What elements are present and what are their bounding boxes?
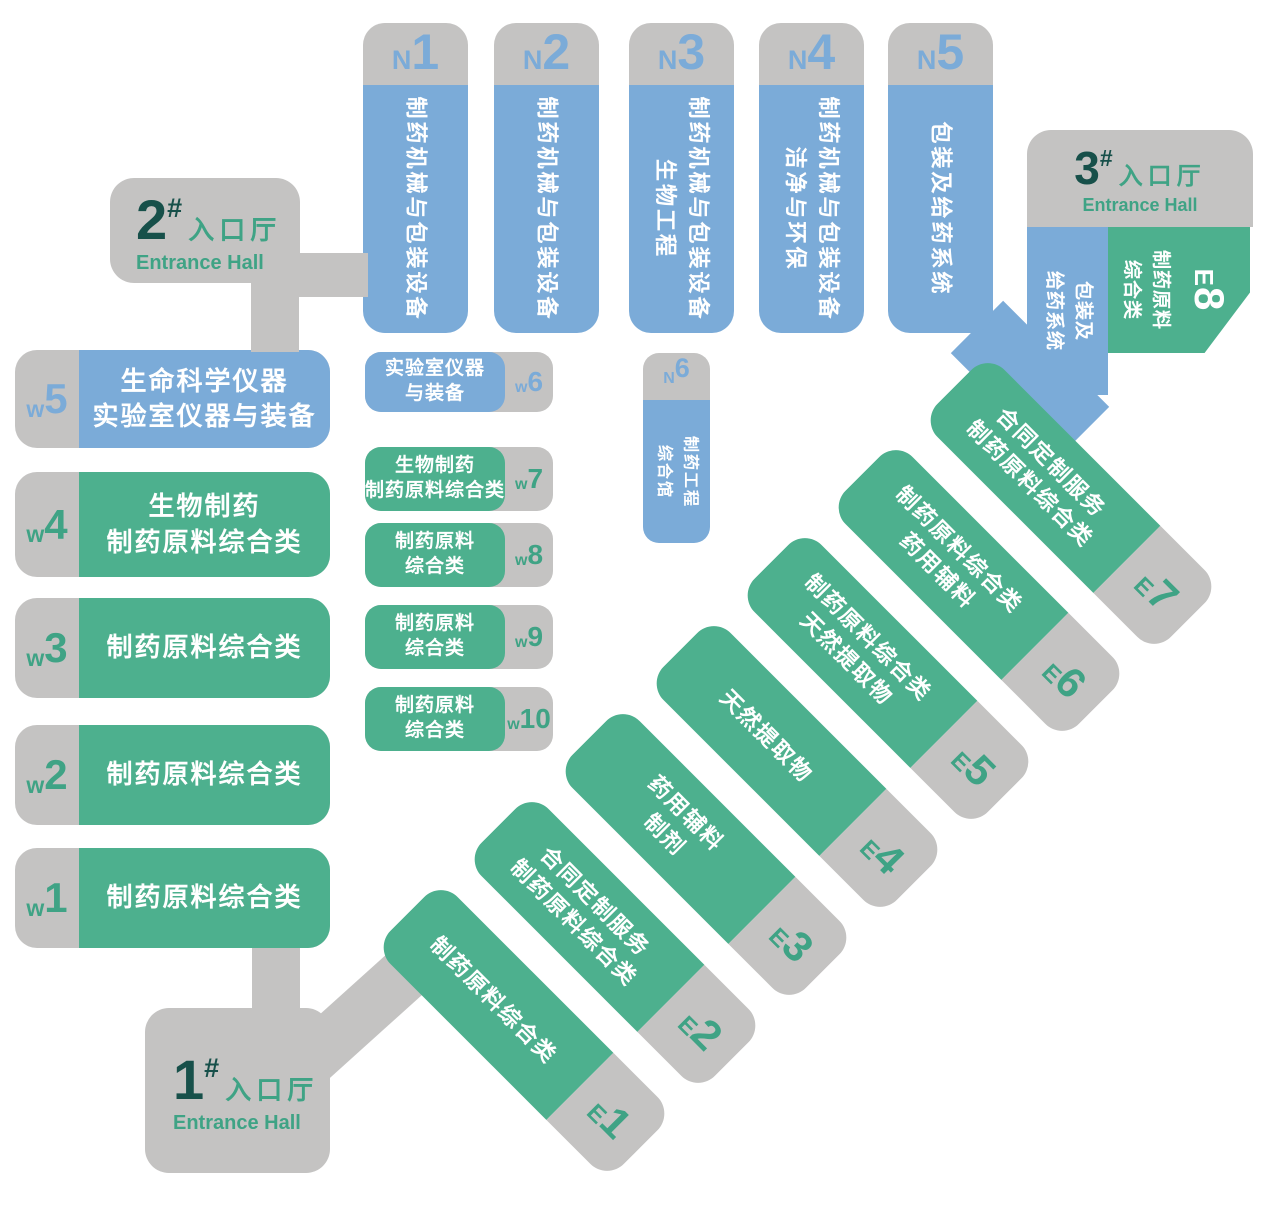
floor-plan-map: 包装及 给药系统 E8 制药原料 综合类 3#入口厅 Entrance Hall… xyxy=(0,0,1266,1208)
entrance-3-number: 3 xyxy=(1074,142,1100,194)
hall-e8-id: E8 xyxy=(1178,250,1241,330)
entrance-2-hash: # xyxy=(167,193,182,223)
hall-w7-category: 生物制药制药原料综合类 xyxy=(365,447,505,511)
hall-w2-category: 制药原料综合类 xyxy=(79,725,330,825)
hall-w5-id: w5 xyxy=(15,350,79,448)
hall-w6-category: 实验室仪器与装备 xyxy=(365,352,505,412)
hall-w8-id: w8 xyxy=(505,523,553,587)
hall-w6-id: w6 xyxy=(505,352,553,412)
hall-n3: N3 制药机械与包装设备生物工程 xyxy=(629,23,734,333)
hall-w4: w4 生物制药制药原料综合类 xyxy=(15,472,330,577)
hall-w3-id: w3 xyxy=(15,598,79,698)
hall-n1: N1 制药机械与包装设备 xyxy=(363,23,468,333)
hall-e8: E8 制药原料 综合类 xyxy=(1108,227,1250,353)
hall-n4-id: N4 xyxy=(759,23,864,85)
hall-w8-category: 制药原料综合类 xyxy=(365,523,505,587)
hall-e8-packaging-wing: 包装及 给药系统 xyxy=(1027,227,1108,395)
entrance-1-number: 1 xyxy=(173,1048,204,1111)
entrance-2-number: 2 xyxy=(136,188,167,251)
hall-w4-category: 生物制药制药原料综合类 xyxy=(79,472,330,577)
hall-w10: 制药原料综合类 w10 xyxy=(365,687,553,751)
hall-n6-id: N6 xyxy=(643,353,710,400)
entrance-1-label-cn: 入口厅 xyxy=(225,1075,318,1105)
hall-n2: N2 制药机械与包装设备 xyxy=(494,23,599,333)
entrance-1-label-en: Entrance Hall xyxy=(173,1112,330,1135)
hall-w5: w5 生命科学仪器实验室仪器与装备 xyxy=(15,350,330,448)
hall-w8: 制药原料综合类 w8 xyxy=(365,523,553,587)
hall-w1-id: w1 xyxy=(15,848,79,948)
entrance-3-label-en: Entrance Hall xyxy=(1082,195,1197,216)
hall-n6-category: 制药工程综合馆 xyxy=(651,435,702,507)
hall-n3-id: N3 xyxy=(629,23,734,85)
hall-e8-category: 制药原料 xyxy=(1146,250,1175,330)
packaging-wing-label: 包装及 给药系统 xyxy=(1039,271,1096,351)
hall-w1: w1 制药原料综合类 xyxy=(15,848,330,948)
hall-n5: N5 包装及给药系统 xyxy=(888,23,993,333)
hall-n1-id: N1 xyxy=(363,23,468,85)
hall-n3-category: 制药机械与包装设备生物工程 xyxy=(649,96,715,321)
connector-entrance2-to-w5 xyxy=(251,270,299,352)
hall-n1-category: 制药机械与包装设备 xyxy=(399,96,432,321)
hall-w10-id: w10 xyxy=(505,687,553,751)
hall-w7: 生物制药制药原料综合类 w7 xyxy=(365,447,553,511)
hall-n6: N6 制药工程综合馆 xyxy=(643,353,710,543)
hall-n4-category: 制药机械与包装设备洁净与环保 xyxy=(779,96,845,321)
hall-n2-id: N2 xyxy=(494,23,599,85)
hall-w6: 实验室仪器与装备 w6 xyxy=(365,352,553,412)
entrance-hall-3: 3#入口厅 Entrance Hall xyxy=(1027,130,1253,227)
entrance-1-hash: # xyxy=(204,1053,219,1083)
hall-w3-category: 制药原料综合类 xyxy=(79,598,330,698)
hall-w3: w3 制药原料综合类 xyxy=(15,598,330,698)
hall-w2: w2 制药原料综合类 xyxy=(15,725,330,825)
hall-w2-id: w2 xyxy=(15,725,79,825)
hall-n4: N4 制药机械与包装设备洁净与环保 xyxy=(759,23,864,333)
connector-w1-to-entrance1 xyxy=(252,944,300,1012)
hall-w9: 制药原料综合类 w9 xyxy=(365,605,553,669)
entrance-3-hash: # xyxy=(1100,145,1113,171)
hall-w9-category: 制药原料综合类 xyxy=(365,605,505,669)
entrance-hall-2: 2#入口厅 Entrance Hall xyxy=(110,178,300,283)
entrance-hall-1: 1#入口厅 Entrance Hall xyxy=(145,1008,330,1173)
hall-w10-category: 制药原料综合类 xyxy=(365,687,505,751)
entrance-2-label-cn: 入口厅 xyxy=(188,215,281,245)
hall-n5-id: N5 xyxy=(888,23,993,85)
hall-w7-id: w7 xyxy=(505,447,553,511)
hall-w9-id: w9 xyxy=(505,605,553,669)
hall-w4-id: w4 xyxy=(15,472,79,577)
entrance-3-label-cn: 入口厅 xyxy=(1119,163,1206,190)
hall-w5-category: 生命科学仪器实验室仪器与装备 xyxy=(79,350,330,448)
hall-w1-category: 制药原料综合类 xyxy=(79,848,330,948)
hall-n2-category: 制药机械与包装设备 xyxy=(530,96,563,321)
hall-n5-category: 包装及给药系统 xyxy=(924,121,957,296)
